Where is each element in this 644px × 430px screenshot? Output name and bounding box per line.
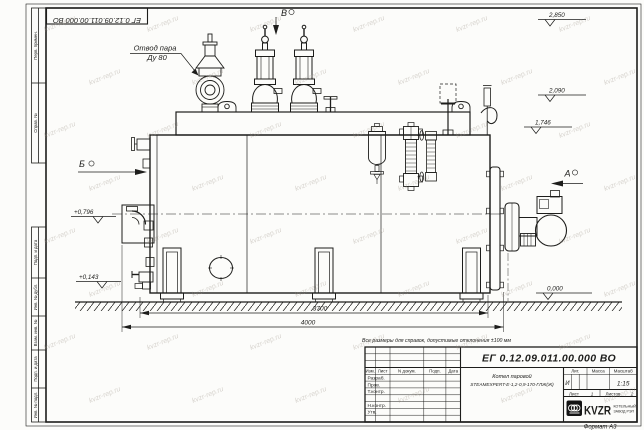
manhole (208, 255, 234, 281)
col-data: Дата (448, 369, 458, 374)
front-fittings (122, 138, 154, 290)
watermark-text: kvzr-rep.ru (558, 333, 592, 352)
row-prov: Пров. (368, 382, 381, 388)
lit-label: Лит. (571, 369, 579, 374)
watermark-text: kvzr-rep.ru (88, 386, 122, 405)
watermark-text: kvzr-rep.ru (455, 121, 489, 140)
row-tkontr: Т.контр. (368, 389, 385, 395)
margin-cell-label: Подп. и дата (33, 356, 38, 382)
boiler-drawing (75, 25, 622, 311)
watermark-text: kvzr-rep.ru (191, 386, 225, 405)
margin-cell-label: Перв. примен. (33, 31, 38, 60)
watermark-text: kvzr-rep.ru (294, 280, 328, 299)
callout-line2: Ду 80 (146, 53, 167, 62)
safety-valve-icon (252, 25, 283, 112)
elevation-2090: 2,090 (548, 87, 565, 94)
watermark-text: kvzr-rep.ru (249, 121, 283, 140)
margin-cell-label: Справ. № (33, 113, 38, 133)
margin-stamp-labels: Перв. примен. Справ. № Подп. и дата Инв.… (33, 31, 38, 418)
watermark-text: kvzr-rep.ru (558, 121, 592, 140)
sheet-value: 1 (591, 391, 594, 396)
watermark-text: kvzr-rep.ru (191, 174, 225, 193)
lifting-lug-icon (218, 102, 236, 113)
elevation-2850: 2,850 (548, 12, 565, 19)
level-electrode (483, 86, 492, 136)
margin-cell-label: Инв. № подл. (33, 392, 38, 419)
watermark-text: kvzr-rep.ru (500, 386, 534, 405)
view-label-v: В (281, 8, 287, 18)
watermark-text: kvzr-rep.ru (88, 68, 122, 87)
watermark-text: kvzr-rep.ru (88, 280, 122, 299)
watermark-text: kvzr-rep.ru (500, 174, 534, 193)
col-izm: Изм. (365, 369, 374, 374)
watermark-text: kvzr-rep.ru (603, 280, 637, 299)
scale-value: 1:15 (617, 381, 630, 388)
watermark-text: kvzr-rep.ru (397, 280, 431, 299)
scale-label: Масштаб (614, 369, 633, 374)
rear-top-valve (440, 84, 456, 135)
dimensions: 3700 4000 (122, 245, 504, 332)
watermark-text: kvzr-rep.ru (146, 333, 180, 352)
rear-flange (487, 167, 504, 290)
watermark-text: kvzr-rep.ru (249, 15, 283, 34)
watermark-text: kvzr-rep.ru (455, 15, 489, 34)
row-utv: Утв. (368, 410, 377, 416)
lit-value: И (565, 381, 570, 387)
watermark-text: kvzr-rep.ru (603, 68, 637, 87)
corner-stamp-number: ЕГ 0.12.09.011.00.000 ВО (53, 16, 141, 25)
steam-outlet-valve (196, 34, 224, 112)
ground-hatch (75, 302, 622, 311)
corner-stamp: ЕГ 0.12.09.011.00.000 ВО (47, 8, 148, 25)
product-name-line2: STEAMEXPERT-Е-1,2-0,9-170-ГЛЖ(Ж) (470, 382, 554, 387)
support-leg (460, 248, 483, 302)
dim-3700: 3700 (313, 306, 328, 313)
row-razrab: Разраб. (368, 376, 385, 382)
water-level-gauge (400, 123, 423, 191)
view-label-b: Б (79, 159, 85, 169)
watermark-text: kvzr-rep.ru (43, 333, 77, 352)
dim-4000: 4000 (301, 320, 316, 327)
product-name-line1: Котел паровой (492, 373, 531, 380)
elevation-0000: 0,000 (547, 285, 563, 292)
sheets-value: 2 (630, 391, 634, 396)
support-leg (161, 248, 184, 302)
logo-sub2: ЗАВОД РЭП (614, 410, 635, 414)
col-podp: Подп. (429, 369, 441, 374)
watermark-text: kvzr-rep.ru (294, 174, 328, 193)
watermark-text: kvzr-rep.ru (146, 121, 180, 140)
water-level-gauge (418, 131, 437, 182)
safety-valve-icon (291, 25, 322, 112)
sheet-label: Лист (569, 391, 580, 396)
bent-pipe (481, 108, 497, 124)
watermark-text: kvzr-rep.ru (146, 15, 180, 34)
callout-line1: Отвод пара (134, 44, 177, 53)
watermark-text: kvzr-rep.ru (500, 280, 534, 299)
watermark-text: kvzr-rep.ru (43, 121, 77, 140)
watermark-text: kvzr-rep.ru (352, 15, 386, 34)
cylinder-instrument (369, 124, 386, 185)
watermark-text: kvzr-rep.ru (397, 386, 431, 405)
watermark-text: kvzr-rep.ru (43, 227, 77, 246)
watermark-text: kvzr-rep.ru (294, 386, 328, 405)
watermark-text: kvzr-rep.ru (455, 227, 489, 246)
col-list: Лист (378, 369, 388, 374)
watermark-text: kvzr-rep.ru (249, 227, 283, 246)
drawing-sheet: Перв. примен. Справ. № Подп. и дата Инв.… (0, 0, 644, 430)
reference-note: Все размеры для справок, допустимые откл… (362, 338, 511, 344)
support-leg (313, 248, 336, 302)
logo-sub1: КОТЕЛЬНЫЙ (614, 405, 637, 409)
vent-valve (324, 97, 337, 113)
margin-cell-label: Подп. и дата (33, 239, 38, 265)
elevation-0796: +0,796 (74, 209, 94, 216)
elevation-1746: 1,746 (535, 119, 551, 126)
watermark-text: kvzr-rep.ru (558, 227, 592, 246)
doc-number: ЕГ 0.12.09.011.00.000 ВО (482, 353, 616, 365)
watermark-text: kvzr-rep.ru (500, 68, 534, 87)
watermark-text: kvzr-rep.ru (397, 68, 431, 87)
mass-label: Масса (592, 369, 606, 374)
elevation-0143: +0,143 (79, 274, 99, 281)
col-ndoc: N докум. (398, 369, 416, 374)
margin-cell-label: Взам. инв. № (33, 319, 38, 346)
logo: KVZR КОТЕЛЬНЫЙ ЗАВОД РЭП (567, 401, 637, 418)
watermark-text: kvzr-rep.ru (603, 174, 637, 193)
steam-outlet-callout: Отвод пара Ду 80 (130, 44, 199, 76)
margin-cell-label: Инв. № дубл. (33, 284, 38, 311)
format-label: Формат А3 (584, 425, 617, 430)
row-nkontr: Н.контр. (368, 403, 386, 409)
logo-text: KVZR (584, 406, 612, 418)
view-label-a: А (564, 169, 571, 179)
watermark-text: kvzr-rep.ru (88, 174, 122, 193)
watermark-text: kvzr-rep.ru (191, 280, 225, 299)
watermark-text: kvzr-rep.ru (249, 333, 283, 352)
sheets-label: Листов (606, 391, 621, 396)
